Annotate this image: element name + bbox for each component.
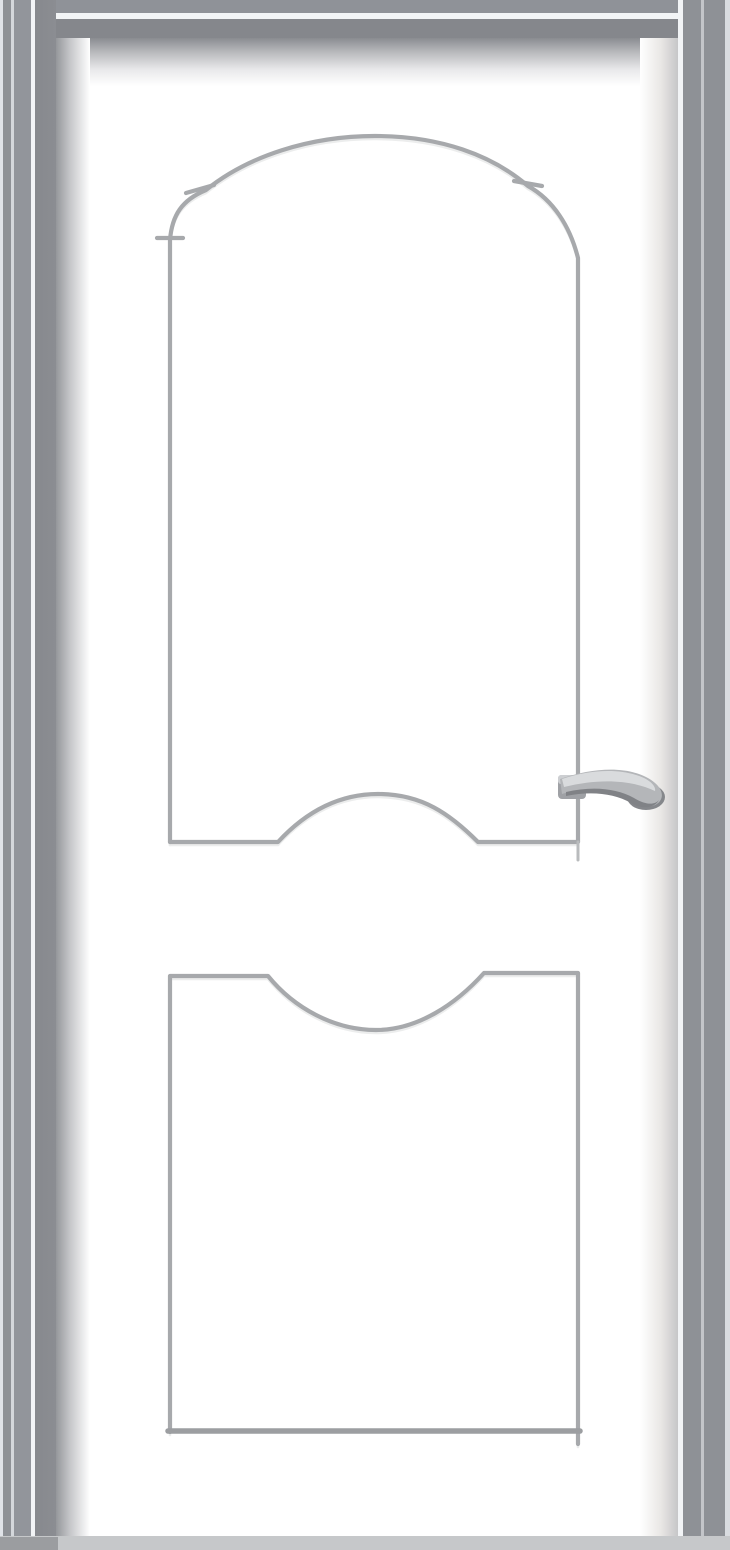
- lower-panel-moulding: [168, 973, 580, 1447]
- right-shoulder-ear: [514, 181, 542, 186]
- upper-panel-moulding: [157, 136, 578, 860]
- door-handle: [558, 770, 665, 810]
- door-frame-left: [0, 0, 56, 1536]
- door-frame-right: [678, 0, 730, 1536]
- door-detail-layer: [0, 0, 730, 1550]
- door-frame-top: [0, 0, 730, 38]
- door-product-photo: [0, 0, 730, 1550]
